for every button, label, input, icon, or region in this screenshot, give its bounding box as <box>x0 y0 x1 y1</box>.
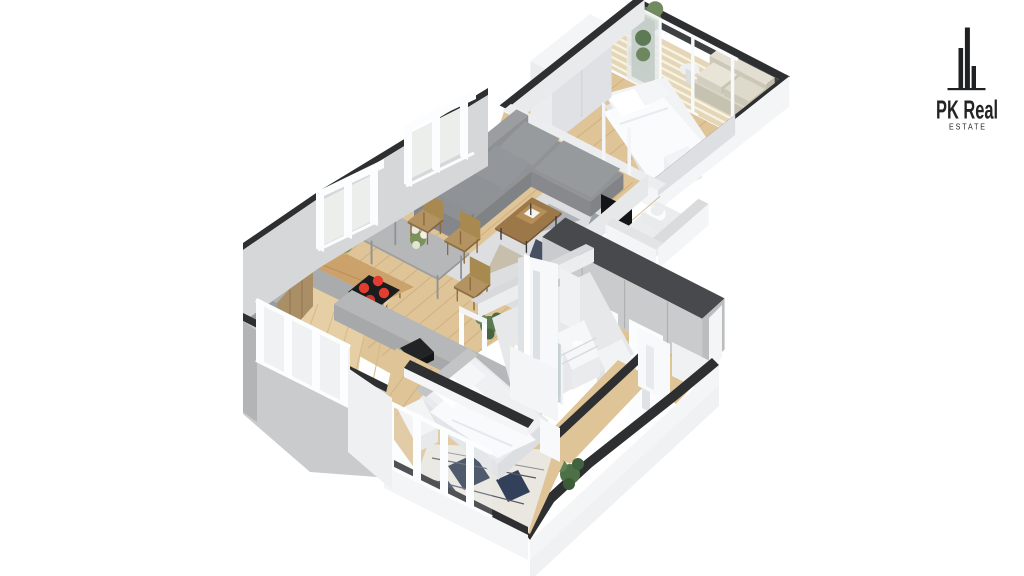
svg-text:PK Real: PK Real <box>936 95 998 125</box>
svg-text:E S T A T E: E S T A T E <box>949 123 985 132</box>
